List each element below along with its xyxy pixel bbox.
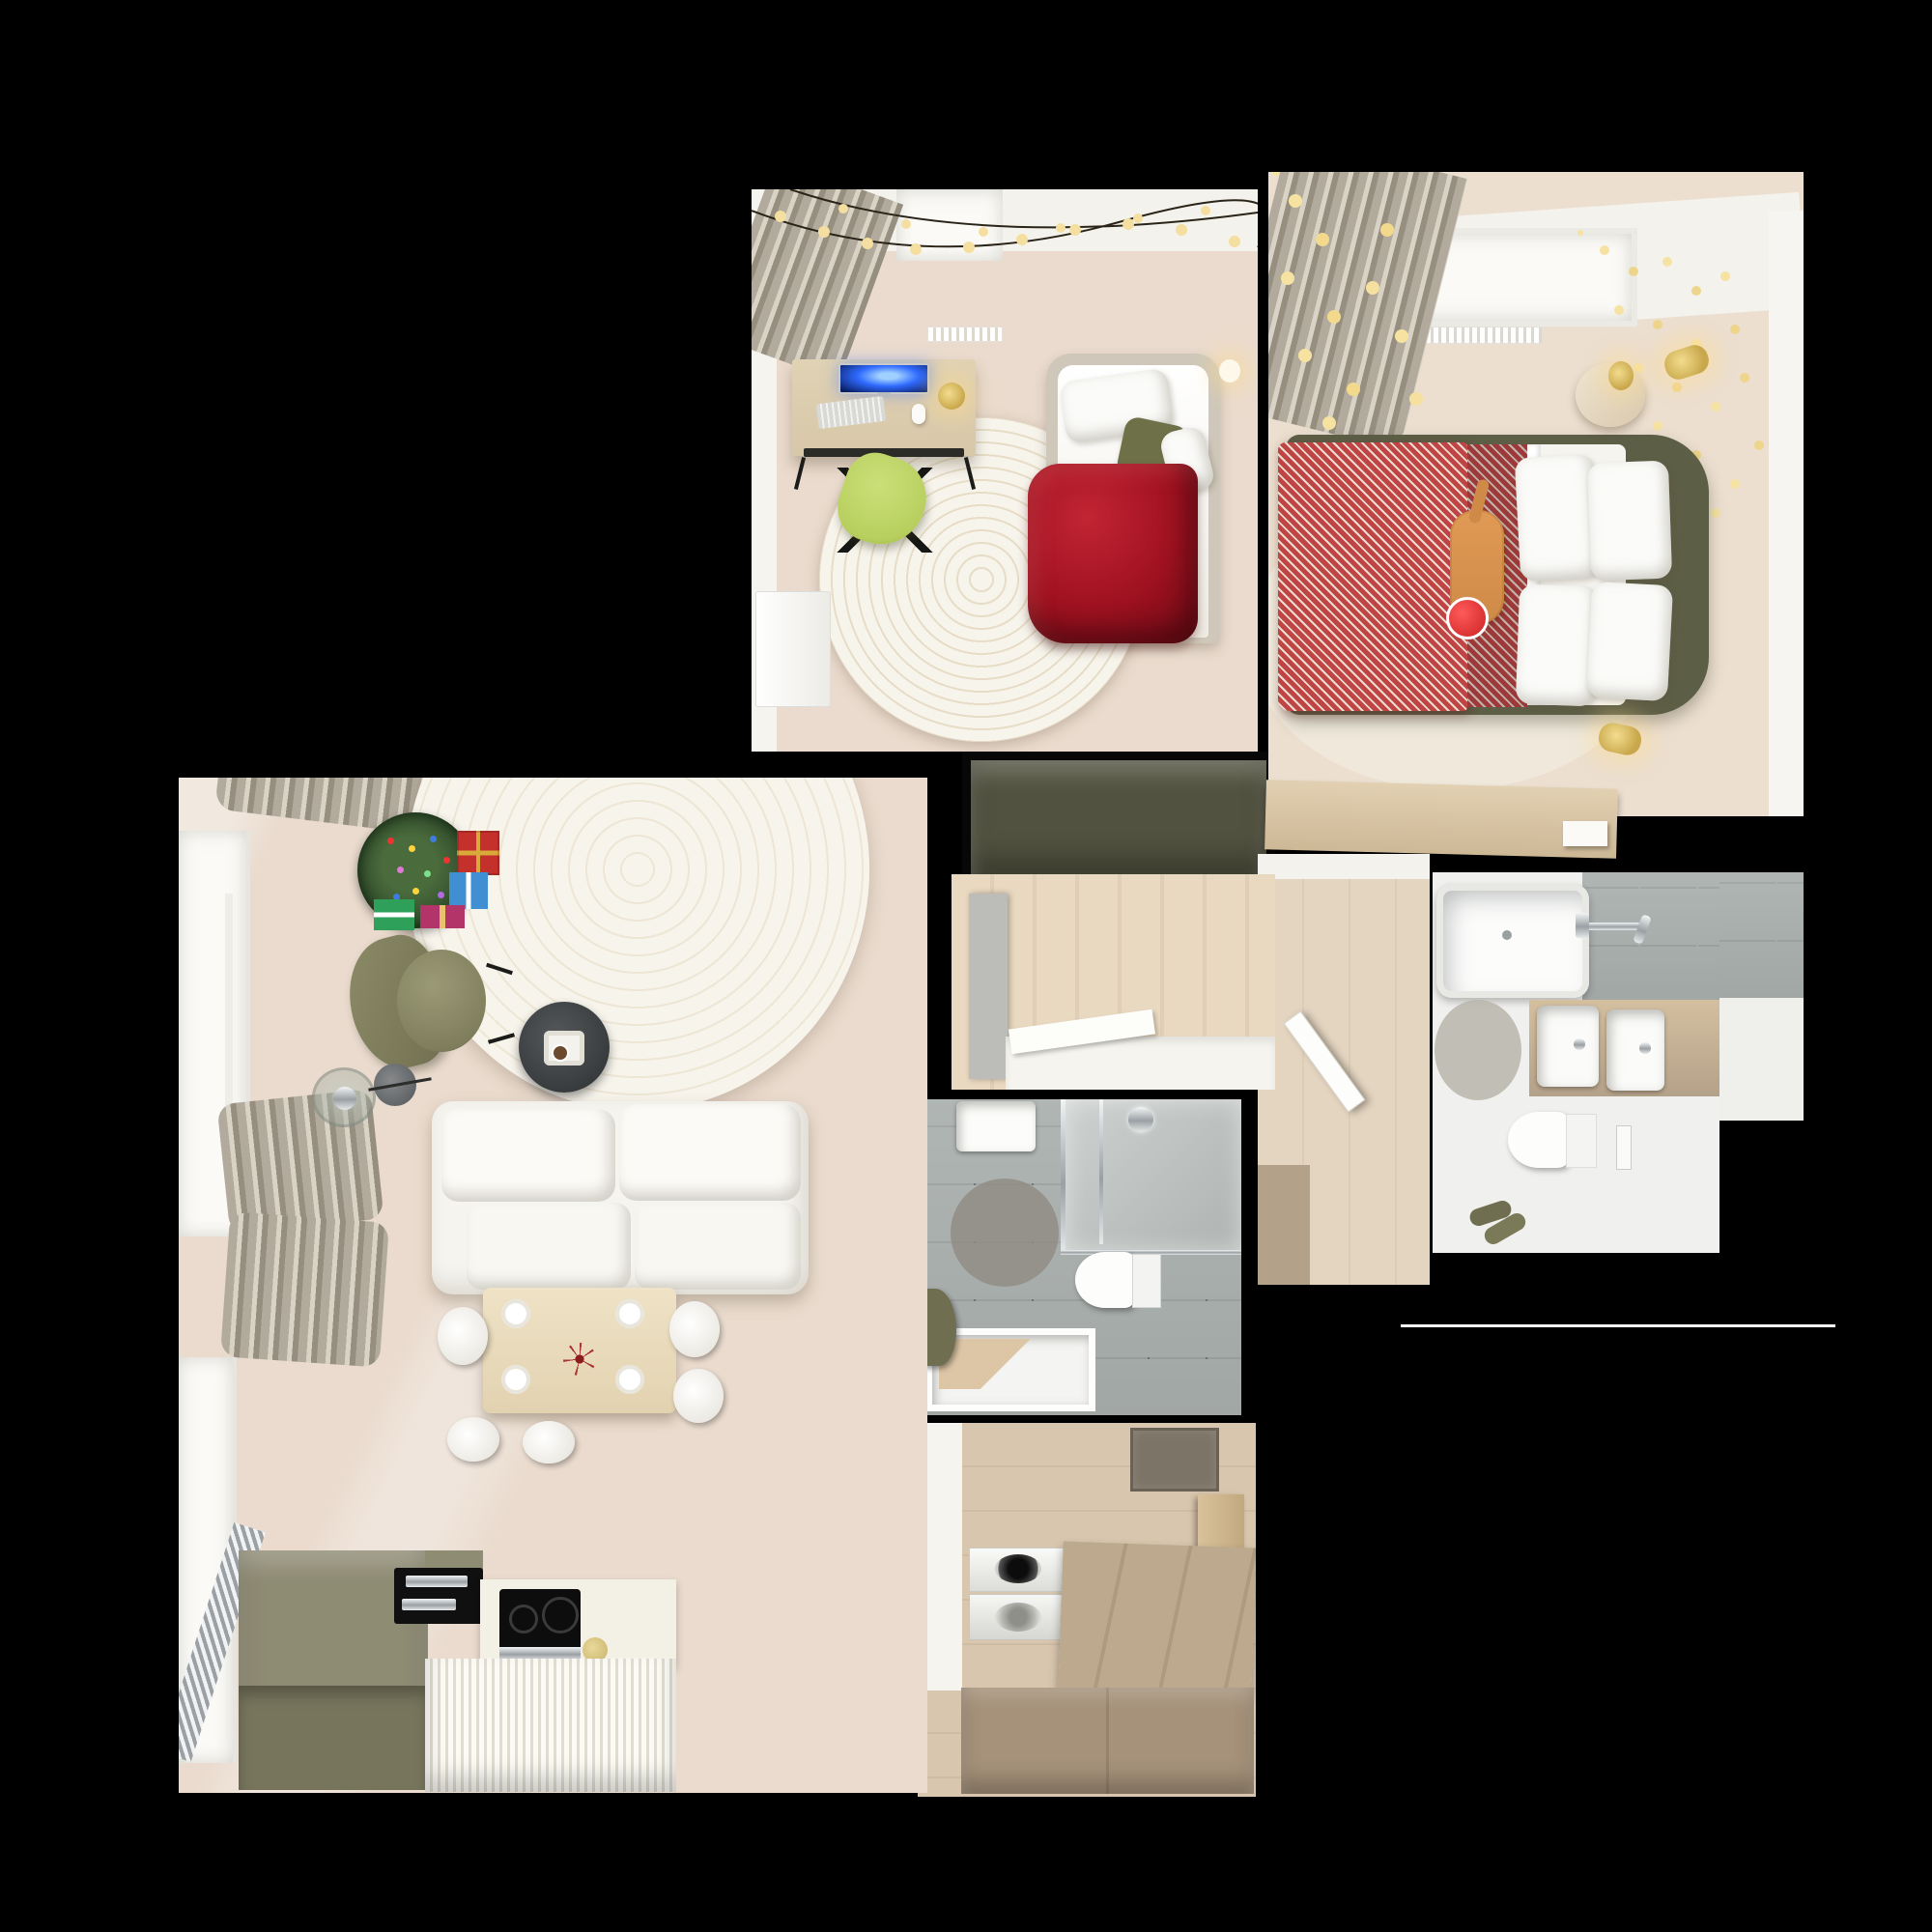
sink-left-tap: [1574, 1038, 1585, 1050]
hallway-right: [1258, 854, 1430, 1285]
shower-glass-edge: [1061, 1099, 1065, 1254]
bathtub: [1436, 884, 1589, 998]
sink-right-tap: [1639, 1042, 1651, 1054]
bedroom-office: [752, 189, 1258, 752]
shower-riser: [1099, 1099, 1103, 1244]
thin-white-seam-line: [1401, 1324, 1835, 1327]
laundry-cabinet-front: [961, 1688, 1254, 1794]
living-kitchen: [179, 778, 927, 1793]
gold-wall-lamp-bottom: [1596, 721, 1643, 757]
centerpiece-twigs: [563, 1343, 596, 1376]
mixer-valve: [1576, 913, 1589, 938]
black-sink-module: [394, 1568, 483, 1624]
gift-blue: [449, 872, 488, 909]
master-pillow-4: [1586, 582, 1673, 701]
dryer-door: [995, 1603, 1041, 1632]
shower-room: [918, 1099, 1241, 1415]
shower-head: [1128, 1107, 1153, 1132]
sofa-seat-cushion-right: [635, 1203, 801, 1290]
white-dresser: [755, 591, 831, 707]
right-wing-tiles: [1719, 872, 1804, 998]
armchair-seat: [397, 950, 486, 1052]
hallway-right-wall-strip: [1258, 854, 1430, 879]
shower-tray-mat: [939, 1339, 1055, 1389]
bathtub-drain: [1502, 930, 1512, 940]
toilet-bowl: [1508, 1112, 1570, 1168]
hallway-gray-pillar: [969, 894, 1008, 1079]
dining-chair-bottom-2: [523, 1421, 575, 1463]
toilet-tank: [1566, 1114, 1597, 1168]
master-bedroom: [1268, 172, 1804, 816]
kitchen-ribbed-front: [425, 1659, 676, 1792]
coffee-cup: [552, 1044, 569, 1062]
sofa-back-cushion-left: [441, 1109, 615, 1202]
induction-hob: [499, 1589, 581, 1664]
sofa-back-cushion-right: [619, 1104, 801, 1201]
side-table-knob: [333, 1087, 356, 1110]
family-bathroom-right-wing: [1719, 872, 1804, 1121]
gift-red: [457, 831, 499, 875]
plate-3: [615, 1299, 644, 1328]
plate-2: [501, 1365, 530, 1394]
red-chevron-blanket: [1278, 442, 1467, 711]
plate-1: [501, 1299, 530, 1328]
red-duvet: [1028, 464, 1198, 643]
flush-panel: [1616, 1125, 1632, 1170]
shower-room-rug: [951, 1179, 1059, 1287]
dining-chair-bottom-1: [447, 1417, 499, 1462]
laundry-counter: [1058, 1542, 1256, 1695]
washer: [969, 1548, 1067, 1592]
olive-wardrobe: [962, 752, 1275, 884]
hob-ring-large: [542, 1597, 579, 1634]
plate-4: [615, 1365, 644, 1394]
sink-slot-1: [406, 1576, 468, 1587]
sofa-seat-cushion-left: [467, 1203, 631, 1290]
master-wardrobe-counter: [1264, 780, 1618, 859]
dining-chair-left: [438, 1307, 488, 1365]
bathroom-tiled-wall: [1582, 872, 1719, 1003]
washer-door: [995, 1554, 1041, 1583]
candle-lamp: [938, 383, 965, 410]
open-door: [1284, 1010, 1366, 1112]
living-round-rug: [406, 778, 869, 1111]
bedside-lamp: [1608, 361, 1634, 390]
string-lights: [752, 189, 1258, 290]
gift-green: [374, 899, 414, 930]
kitchen-island-front: [239, 1686, 428, 1790]
bedroom-office-wall-lamp: [1219, 359, 1240, 383]
mouse: [912, 404, 925, 424]
monitor: [838, 363, 929, 394]
book-on-counter: [1563, 821, 1607, 846]
sink-left: [1537, 1006, 1599, 1087]
hallway-step: [1258, 1165, 1310, 1285]
washbasin: [956, 1101, 1036, 1151]
gift-magenta: [420, 905, 465, 928]
apartment-render-canvas: [0, 0, 1932, 1932]
bathroom-round-rug: [1435, 1000, 1521, 1100]
sink-right: [1606, 1009, 1664, 1091]
master-right-wall: [1769, 211, 1804, 816]
dining-chair-right-2: [673, 1369, 724, 1423]
desk-leg-left: [794, 457, 806, 490]
bedroom-office-radiator: [927, 327, 1003, 342]
living-curtain-low: [220, 1211, 389, 1367]
master-pillow-2: [1516, 584, 1599, 707]
dining-chair-right-1: [669, 1301, 720, 1357]
cat-santa-hat: [1446, 597, 1489, 639]
shower-toilet-tank: [1132, 1254, 1161, 1308]
shower-toilet-bowl: [1075, 1252, 1135, 1308]
doormat: [1130, 1428, 1219, 1492]
tree-ornaments: [387, 838, 394, 844]
dryer: [969, 1594, 1067, 1640]
sink-slot-2: [402, 1599, 456, 1610]
master-pillow-3: [1587, 461, 1672, 582]
laundry-room: [918, 1423, 1256, 1797]
family-bathroom: [1433, 872, 1719, 1253]
hallway-center: [952, 874, 1275, 1090]
hob-ring-small: [509, 1605, 538, 1634]
gold-wall-lamp-top: [1661, 342, 1712, 384]
branch-lights: [1577, 230, 1583, 236]
